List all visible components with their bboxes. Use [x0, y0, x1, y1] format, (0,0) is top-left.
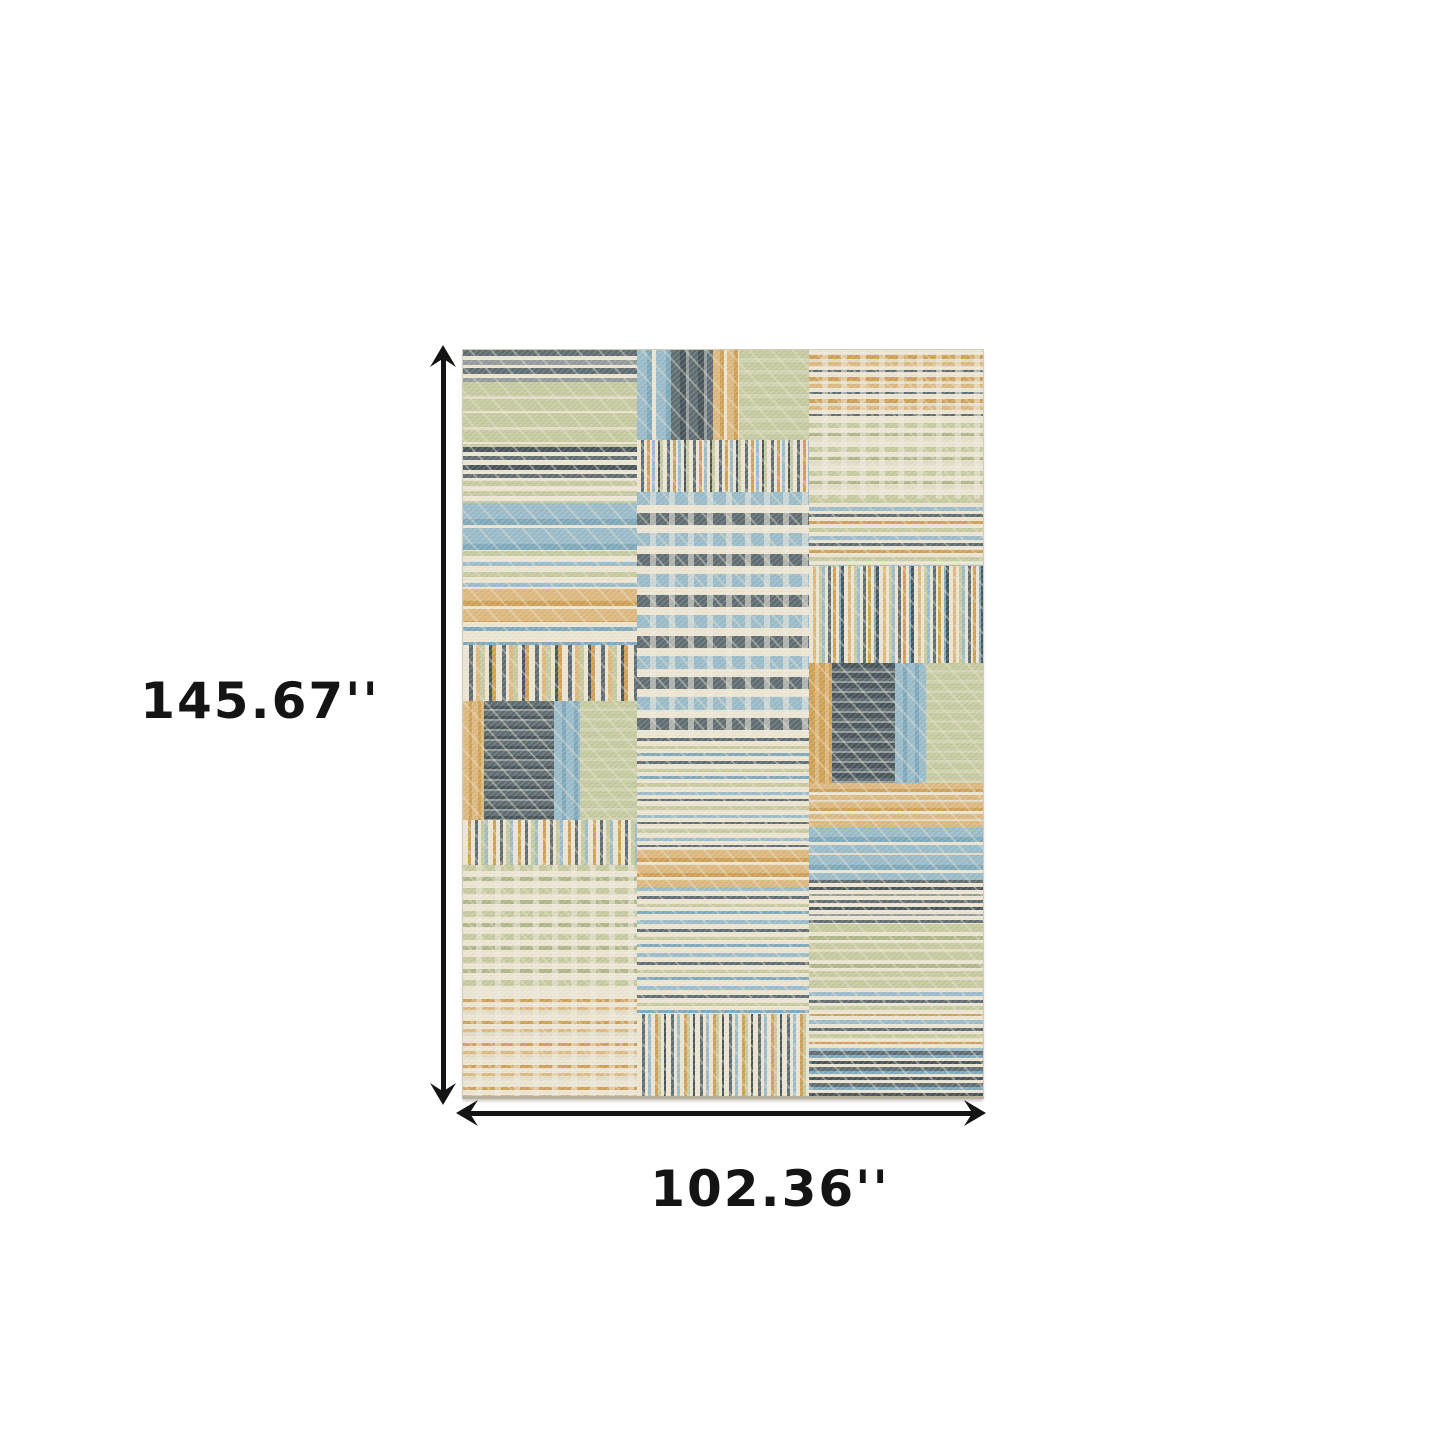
rug-patch: [637, 492, 809, 738]
rug-patch: [637, 850, 809, 887]
rug-patch: [637, 440, 809, 492]
rug-patch: [809, 827, 983, 879]
rug-patch: [832, 663, 894, 782]
rug-patch: [463, 589, 637, 623]
rug-patch: [671, 350, 713, 440]
rug-patch: [809, 1051, 983, 1096]
width-dimension-line: [466, 1111, 976, 1116]
rug-patch: [637, 887, 809, 1014]
rug-patch: [463, 865, 637, 992]
rug-patch: [809, 499, 983, 566]
rug-patch: [463, 820, 637, 865]
height-dimension-line: [441, 355, 446, 1095]
rug-patch: [463, 701, 484, 820]
rug-patch: [637, 350, 671, 440]
rug-patch: [463, 350, 637, 382]
width-dimension-label: 102.36'': [645, 1160, 895, 1218]
rug-patch: [926, 663, 983, 782]
height-dimension-arrow: [430, 345, 456, 1105]
rug-patch: [554, 701, 580, 820]
rug-image: [462, 349, 984, 1099]
rug-patch: [463, 382, 637, 447]
width-dimension-arrow: [456, 1100, 986, 1126]
rug-patch: [484, 701, 554, 820]
rug-patch: [463, 551, 637, 588]
rug-patch: [809, 992, 983, 1052]
rug-patch: [809, 880, 983, 925]
rug-patch: [809, 924, 983, 991]
rug-patch: [637, 783, 809, 850]
height-dimension-label: 145.67'': [140, 672, 380, 730]
rug-patch: [739, 350, 809, 440]
rug-patch: [809, 783, 983, 828]
rug-patch: [809, 566, 983, 663]
rug-patch: [463, 645, 637, 701]
rug-patch: [809, 663, 832, 782]
rug-patch: [713, 350, 739, 440]
rug-patch: [809, 417, 983, 499]
rug-patch: [463, 992, 637, 1096]
rug-patch: [637, 1014, 809, 1096]
rug-patch: [809, 350, 983, 417]
rug-patch: [463, 447, 637, 481]
product-dimension-diagram: 145.67'' 102.36'': [0, 0, 1445, 1445]
rug-patch: [463, 481, 637, 503]
rug-patch: [580, 701, 637, 820]
rug-patch: [463, 503, 637, 551]
rug-patch: [895, 663, 926, 782]
rug-patch: [463, 622, 637, 644]
rug-patch: [637, 738, 809, 783]
